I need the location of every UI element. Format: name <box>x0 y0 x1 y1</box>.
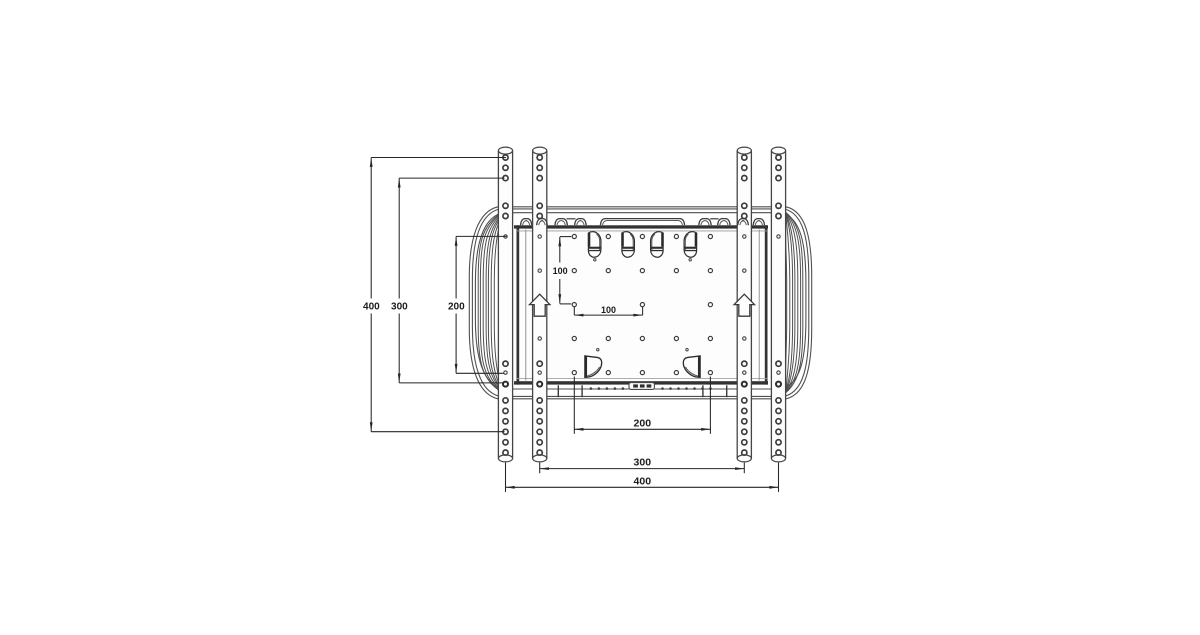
svg-text:300: 300 <box>391 302 408 313</box>
svg-text:200: 200 <box>448 302 465 313</box>
svg-text:100: 100 <box>553 266 568 276</box>
svg-text:100: 100 <box>601 305 616 315</box>
svg-text:200: 200 <box>634 417 652 429</box>
svg-text:400: 400 <box>634 475 652 487</box>
svg-text:400: 400 <box>363 302 380 313</box>
svg-text:300: 300 <box>634 457 652 469</box>
